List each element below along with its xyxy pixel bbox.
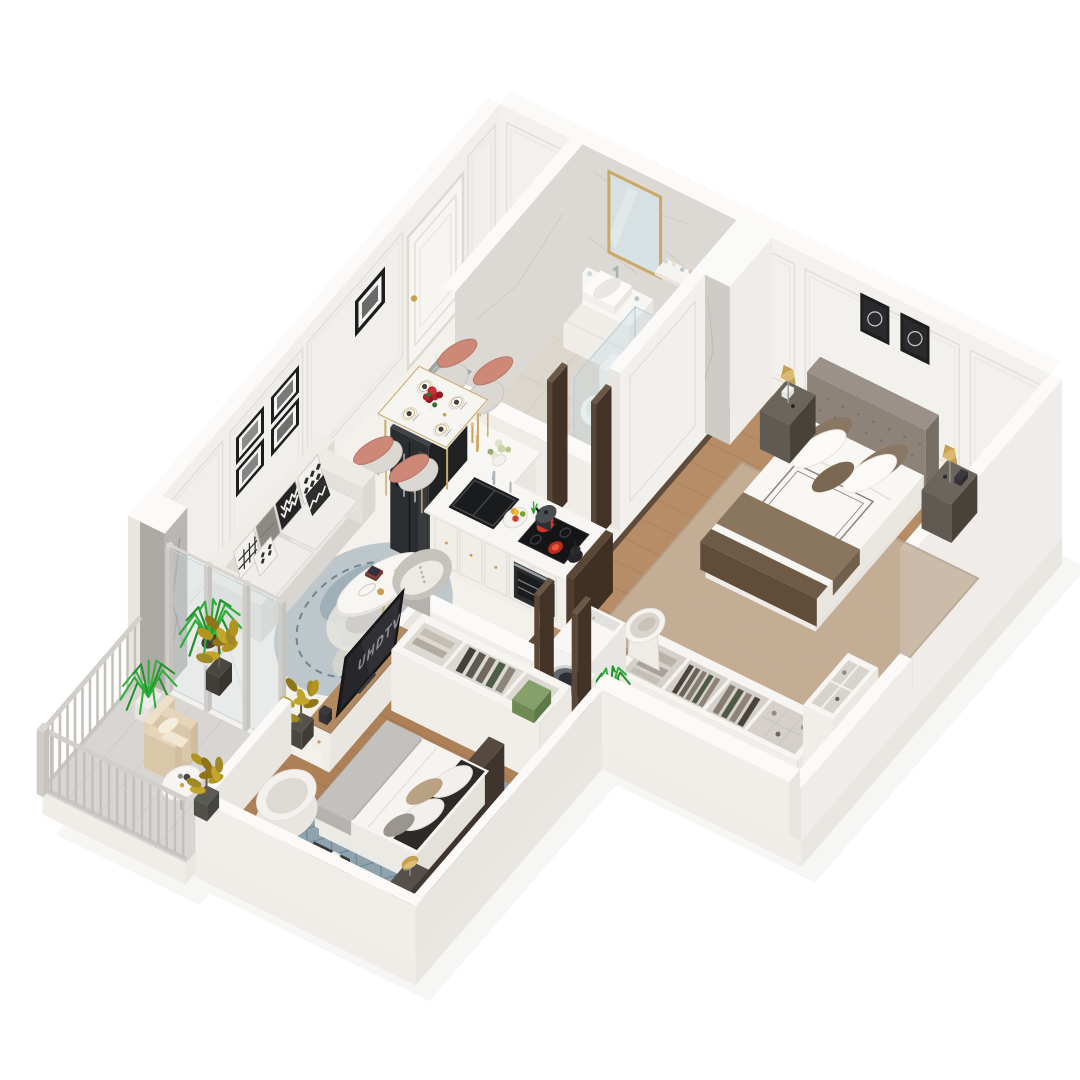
floorplan-svg: UHDTV	[0, 0, 1080, 1080]
floorplan-page: UHDTV	[0, 0, 1080, 1080]
